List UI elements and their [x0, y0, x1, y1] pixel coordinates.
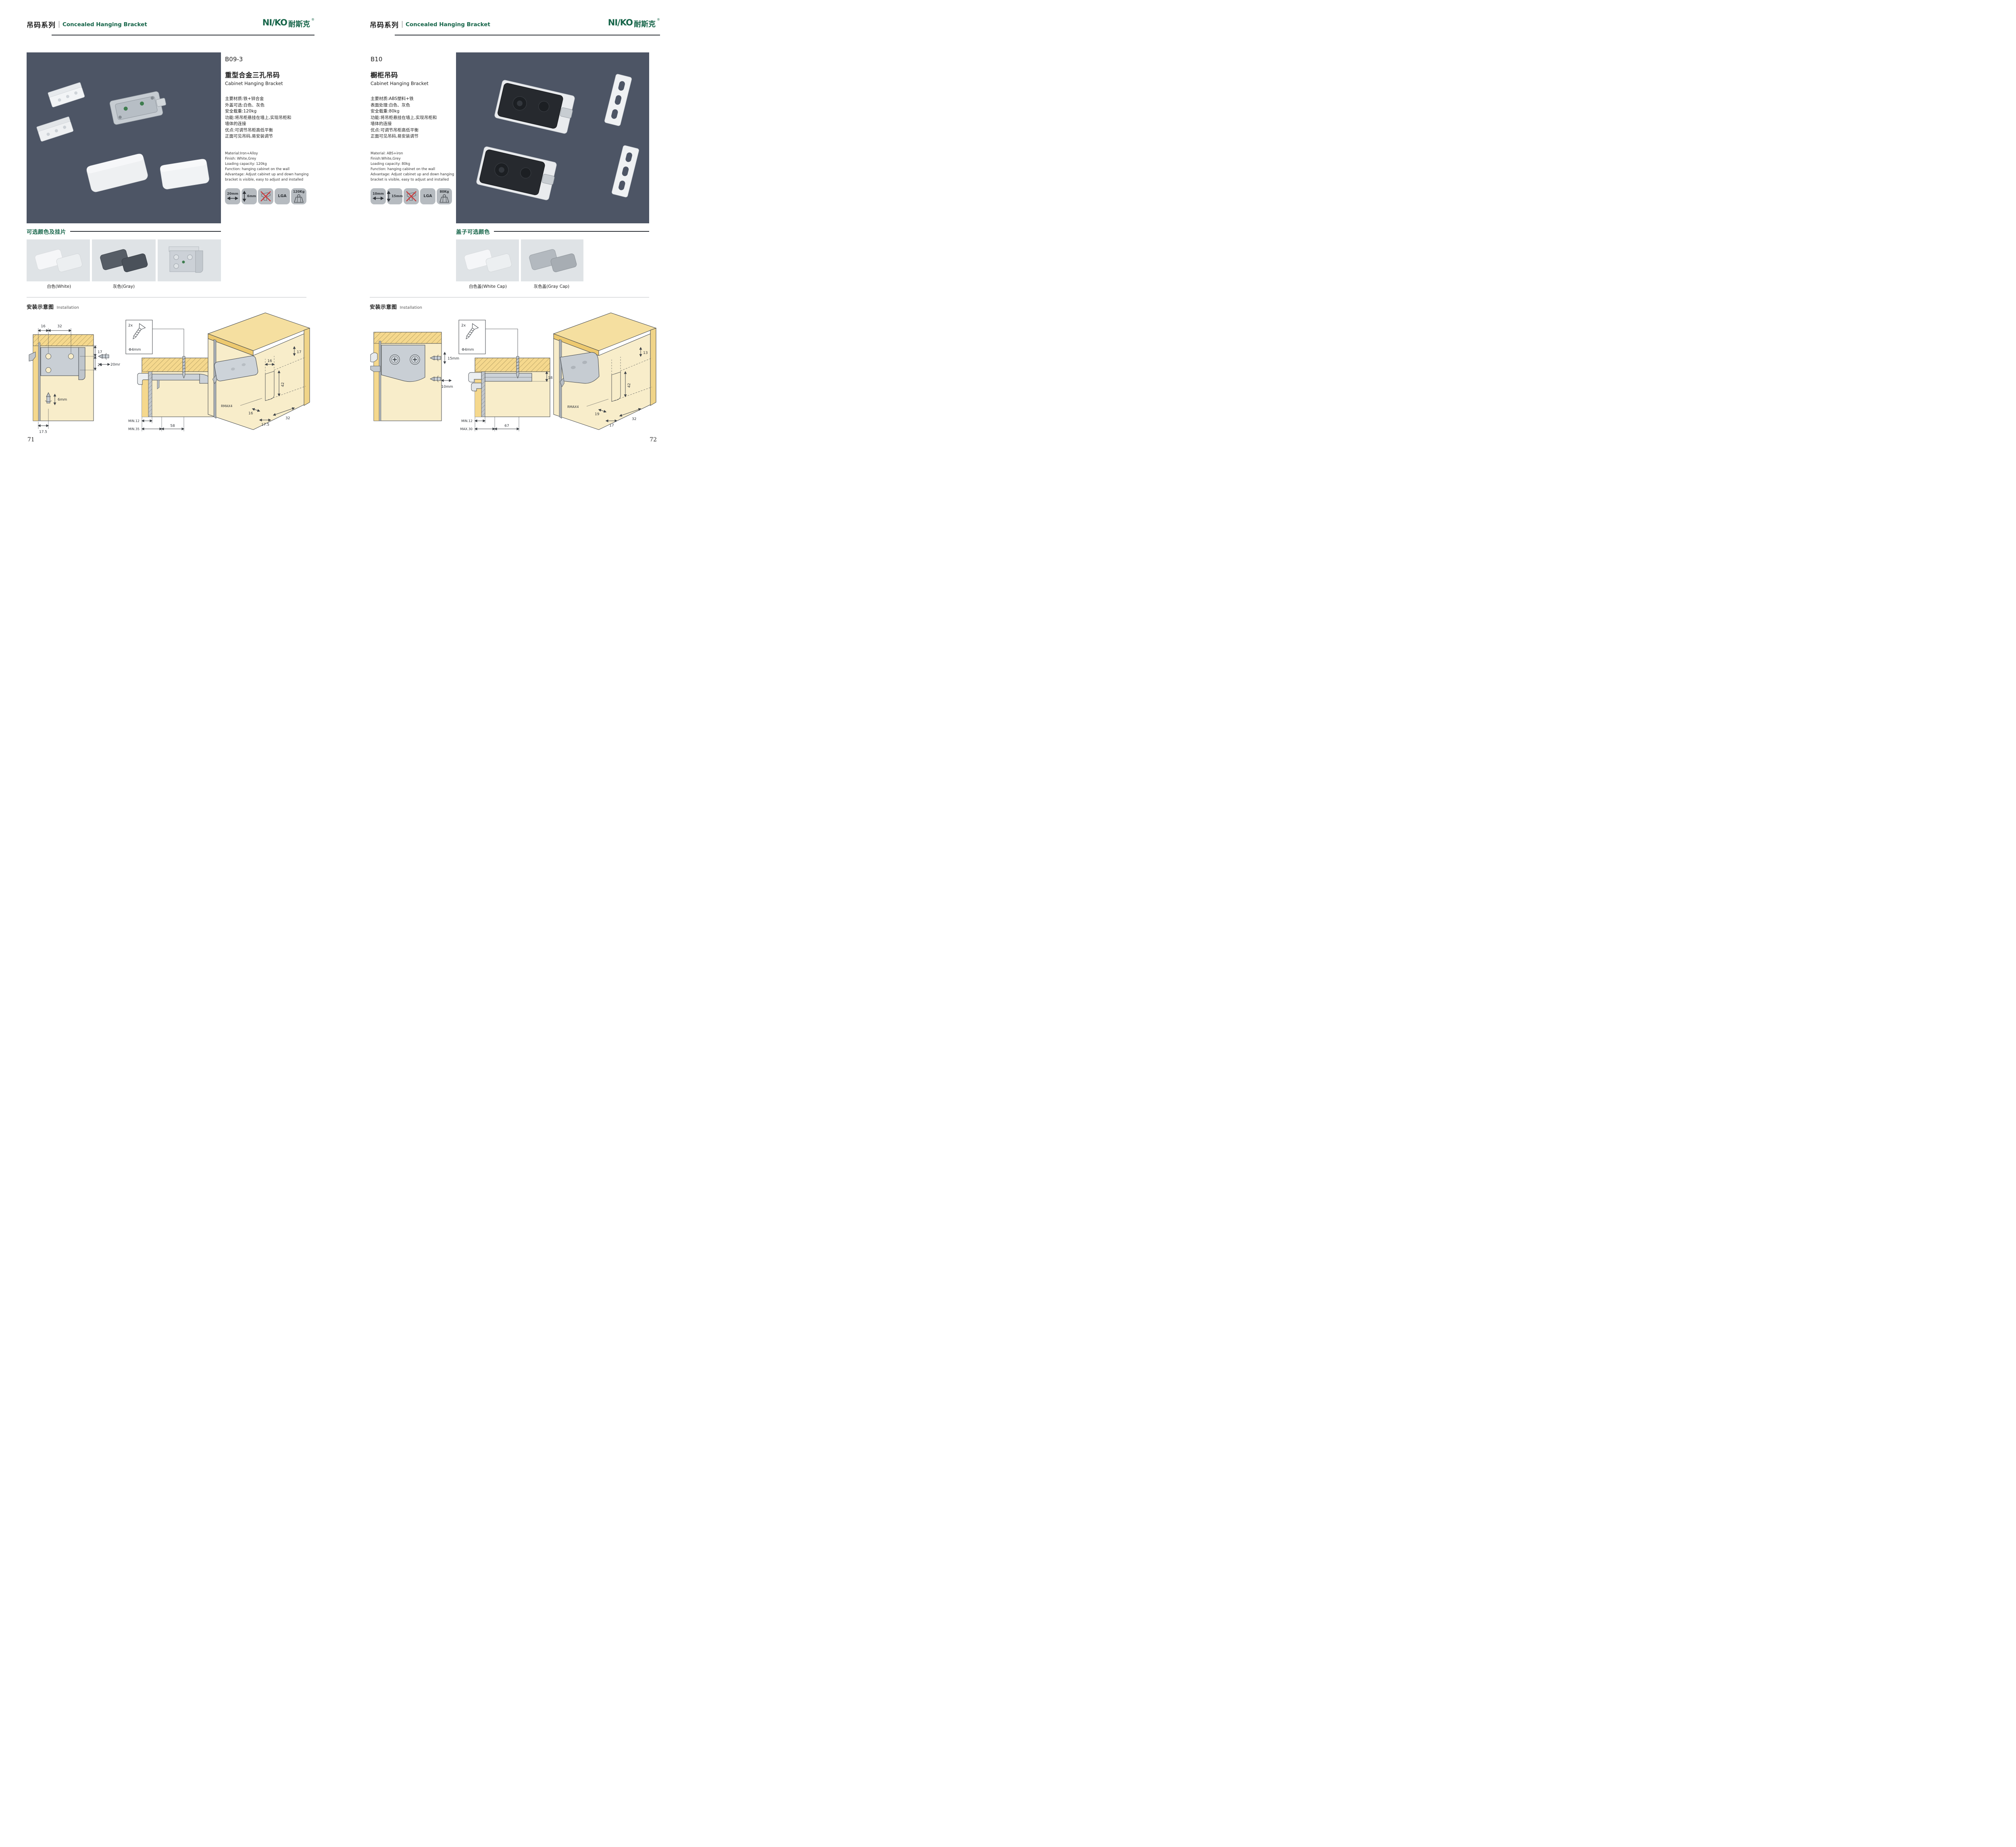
product-name-en: Cabinet Hanging Bracket	[225, 81, 314, 86]
colors-section-title: 盖子可选颜色	[456, 227, 490, 235]
page-header: 吊码系列 Concealed Hanging Bracket NI/KO 耐斯克…	[370, 18, 660, 35]
spec-line: 功能:将吊柜悬挂在墙上,实现吊柜和	[225, 115, 314, 121]
brand-logo-en: NI/KO	[608, 18, 633, 27]
spec-line: Material:Iron+Alloy	[225, 151, 314, 156]
spec-line: Material: ABS+iron	[371, 151, 456, 156]
drill-crossed-out-icon	[260, 190, 272, 202]
product-code: B10	[371, 56, 456, 63]
header-divider	[59, 21, 59, 28]
brand-logo: NI/KO 耐斯克 ®	[262, 18, 314, 29]
double-arrow-vertical-icon	[242, 191, 246, 202]
product-name-cn: 橱柜吊码	[371, 70, 456, 79]
svg-text:17.5: 17.5	[39, 430, 47, 434]
svg-text:20mm: 20mm	[110, 363, 120, 367]
svg-text:MIN.12: MIN.12	[461, 419, 473, 423]
installation-title-cn: 安装示意图	[27, 303, 54, 310]
swatch-labels: 白色盖(White Cap) 灰色盖(Gray Cap)	[456, 283, 583, 289]
spec-line: Finish:White,Grey	[371, 156, 456, 162]
colors-section-title: 可选颜色及挂片	[27, 227, 66, 235]
svg-text:19: 19	[595, 412, 600, 416]
double-arrow-horizontal-icon	[373, 196, 384, 200]
installation-header: 安装示意图 Installation	[370, 303, 422, 310]
brand-logo-cn: 耐斯克	[288, 19, 310, 29]
spec-line: Loading capacity: 80kg	[371, 162, 456, 167]
swatch-label: 白色盖(White Cap)	[456, 283, 520, 289]
drill-crossed-out-icon	[405, 190, 417, 202]
svg-text:MAX.30: MAX.30	[460, 427, 473, 431]
svg-text:16: 16	[248, 412, 253, 416]
badge-width: 20mm	[225, 188, 240, 204]
product-name-cn: 重型合金三孔吊码	[225, 70, 314, 79]
badge-lga: LGA	[275, 188, 290, 204]
spec-line: Advantage: Adjust cabinet up and down ha…	[225, 172, 314, 177]
spec-line: 表面处理:白色、灰色	[371, 102, 456, 109]
weight-icon	[293, 194, 305, 203]
swatch-label	[156, 283, 221, 289]
svg-text:58: 58	[170, 424, 175, 428]
svg-text:42: 42	[627, 383, 631, 387]
badge-width: 10mm	[371, 188, 386, 204]
svg-text:RMAX4: RMAX4	[567, 405, 579, 409]
spec-line: 墙体的连接	[225, 121, 314, 127]
svg-text:6mm: 6mm	[58, 398, 67, 402]
svg-text:42: 42	[281, 382, 285, 387]
product-info: B09-3 重型合金三孔吊码 Cabinet Hanging Bracket 主…	[225, 53, 314, 204]
installation-diagram-front: 16 32 17 25 20mm 6mm 17.5	[27, 318, 120, 435]
svg-text:Φ4mm: Φ4mm	[462, 348, 474, 352]
colors-section-header: 盖子可选颜色	[456, 227, 649, 235]
installation-diagram-3d: 16 17 42 RMAX4 16 17.5 32	[205, 310, 313, 434]
header-divider	[402, 21, 402, 28]
page-right: 吊码系列 Concealed Hanging Bracket NI/KO 耐斯克…	[370, 0, 660, 462]
svg-text:13: 13	[643, 351, 648, 355]
product-photo-b10	[456, 52, 649, 223]
swatch-label: 灰色盖(Gray Cap)	[520, 283, 583, 289]
svg-text:MIN.12: MIN.12	[128, 419, 140, 423]
swatch-metal-bracket	[158, 239, 221, 281]
specs-cn: 主要材质:ABS塑料+铁 表面处理:白色、灰色 安全载重:80kg 功能:将吊柜…	[371, 96, 456, 140]
feature-badges: 10mm 15mm	[371, 188, 456, 204]
spec-line: Function: hanging cabinet on the wall	[371, 167, 456, 172]
double-arrow-horizontal-icon	[227, 196, 238, 200]
installation-diagram-side: 2x Φ4mm 18	[456, 318, 553, 435]
installation-diagram-front: 15mm 10mm	[370, 318, 462, 435]
product-photo-b09-3	[27, 52, 221, 223]
badge-no-drill	[404, 188, 419, 204]
svg-text:32: 32	[57, 324, 62, 329]
spec-line: 优点:可调节吊柜高低平衡	[371, 127, 456, 134]
svg-text:Φ4mm: Φ4mm	[129, 348, 141, 352]
installation-diagram-3d: 13 42 RMAX4 19 17 32	[550, 310, 660, 434]
installation-title-en: Installation	[400, 306, 422, 310]
installation-header: 安装示意图 Installation	[27, 303, 79, 310]
product-photo-illustration	[27, 52, 221, 223]
colors-section-rule	[494, 231, 649, 232]
svg-text:16: 16	[41, 324, 46, 329]
color-swatches	[456, 239, 583, 281]
product-info: B10 橱柜吊码 Cabinet Hanging Bracket 主要材质:AB…	[371, 53, 456, 204]
page-left: 吊码系列 Concealed Hanging Bracket NI/KO 耐斯克…	[27, 0, 314, 462]
badge-height: 6mm	[242, 188, 257, 204]
spec-line: Function: hanging cabinet on the wall	[225, 167, 314, 172]
double-arrow-vertical-icon	[387, 191, 391, 202]
spec-line: 主要材质:ABS塑料+铁	[371, 96, 456, 102]
section-divider	[370, 297, 649, 297]
brand-logo: NI/KO 耐斯克 ®	[608, 18, 660, 29]
brand-logo-en: NI/KO	[262, 18, 287, 27]
svg-text:RMAX4: RMAX4	[221, 404, 233, 408]
badge-lga: LGA	[420, 188, 435, 204]
colors-section-rule	[70, 231, 221, 232]
product-code: B09-3	[225, 56, 314, 63]
series-title-cn: 吊码系列	[370, 19, 399, 29]
badge-load: 120Kg	[291, 188, 306, 204]
specs-en: Material:Iron+Alloy Finish: White,Grey L…	[225, 151, 314, 183]
spec-line: 主要材质:铁+锌合金	[225, 96, 314, 102]
spec-line: Loading capacity: 120kg	[225, 162, 314, 167]
registered-mark-icon: ®	[657, 18, 660, 21]
svg-text:17: 17	[609, 424, 614, 428]
header-title: 吊码系列 Concealed Hanging Bracket	[27, 19, 147, 29]
svg-text:16: 16	[267, 359, 272, 363]
spec-line: Finish: White,Grey	[225, 156, 314, 162]
svg-text:2x: 2x	[461, 324, 466, 328]
page-number: 71	[27, 437, 35, 443]
installation-title-en: Installation	[57, 306, 79, 310]
section-divider	[27, 297, 306, 297]
swatch-labels: 白色(White) 灰色(Gray)	[27, 283, 221, 289]
svg-text:2x: 2x	[128, 324, 133, 328]
swatch-label: 灰色(Gray)	[92, 283, 156, 289]
header-title: 吊码系列 Concealed Hanging Bracket	[370, 19, 490, 29]
swatch-white	[27, 239, 90, 281]
svg-text:67: 67	[504, 424, 509, 428]
spec-line: 安全载重:120kg	[225, 108, 314, 115]
spec-line: bracket is visible, easy to adjust and i…	[225, 177, 314, 183]
badge-no-drill	[258, 188, 273, 204]
specs-en: Material: ABS+iron Finish:White,Grey Loa…	[371, 151, 456, 183]
swatch-label: 白色(White)	[27, 283, 92, 289]
svg-text:17.5: 17.5	[261, 423, 269, 427]
feature-badges: 20mm 6mm	[225, 188, 314, 204]
header-rule	[395, 35, 660, 35]
svg-text:32: 32	[632, 417, 636, 421]
svg-text:17: 17	[98, 350, 102, 354]
swatch-gray	[92, 239, 155, 281]
product-name-en: Cabinet Hanging Bracket	[371, 81, 456, 86]
spec-line: 安全载重:80kg	[371, 108, 456, 115]
page-header: 吊码系列 Concealed Hanging Bracket NI/KO 耐斯克…	[27, 18, 314, 35]
registered-mark-icon: ®	[311, 18, 314, 21]
series-title-cn: 吊码系列	[27, 19, 56, 29]
svg-text:10mm: 10mm	[442, 385, 453, 389]
colors-section-header: 可选颜色及挂片	[27, 227, 221, 235]
spec-line: 外盖可选:白色、灰色	[225, 102, 314, 109]
product-photo-illustration	[456, 52, 649, 223]
series-title-en: Concealed Hanging Bracket	[406, 21, 490, 28]
weight-icon	[438, 194, 450, 203]
spec-line: 正面可见吊码,易安装调节	[371, 133, 456, 140]
spec-line: 墙体的连接	[371, 121, 456, 127]
installation-title-cn: 安装示意图	[370, 303, 397, 310]
spec-line: 优点:可调节吊柜高低平衡	[225, 127, 314, 134]
brand-logo-cn: 耐斯克	[634, 19, 656, 29]
catalog-spread: 吊码系列 Concealed Hanging Bracket NI/KO 耐斯克…	[0, 0, 676, 462]
spec-line: 正面可见吊码,易安装调节	[225, 133, 314, 140]
badge-height: 15mm	[387, 188, 402, 204]
swatch-gray-cap	[521, 239, 584, 281]
header-rule	[52, 35, 314, 35]
specs-cn: 主要材质:铁+锌合金 外盖可选:白色、灰色 安全载重:120kg 功能:将吊柜悬…	[225, 96, 314, 140]
spec-line: bracket is visible, easy to adjust and i…	[371, 177, 456, 183]
svg-text:MIN.35: MIN.35	[128, 427, 140, 431]
svg-text:17: 17	[297, 350, 301, 354]
page-number: 72	[650, 437, 657, 443]
svg-text:25: 25	[98, 363, 102, 367]
svg-text:32: 32	[285, 416, 290, 420]
badge-load: 80Kg	[437, 188, 452, 204]
spec-line: 功能:将吊柜悬挂在墙上,实现吊柜和	[371, 115, 456, 121]
series-title-en: Concealed Hanging Bracket	[62, 21, 147, 28]
spec-line: Advantage: Adjust cabinet up and down ha…	[371, 172, 456, 177]
swatch-white-cap	[456, 239, 519, 281]
color-swatches	[27, 239, 221, 281]
